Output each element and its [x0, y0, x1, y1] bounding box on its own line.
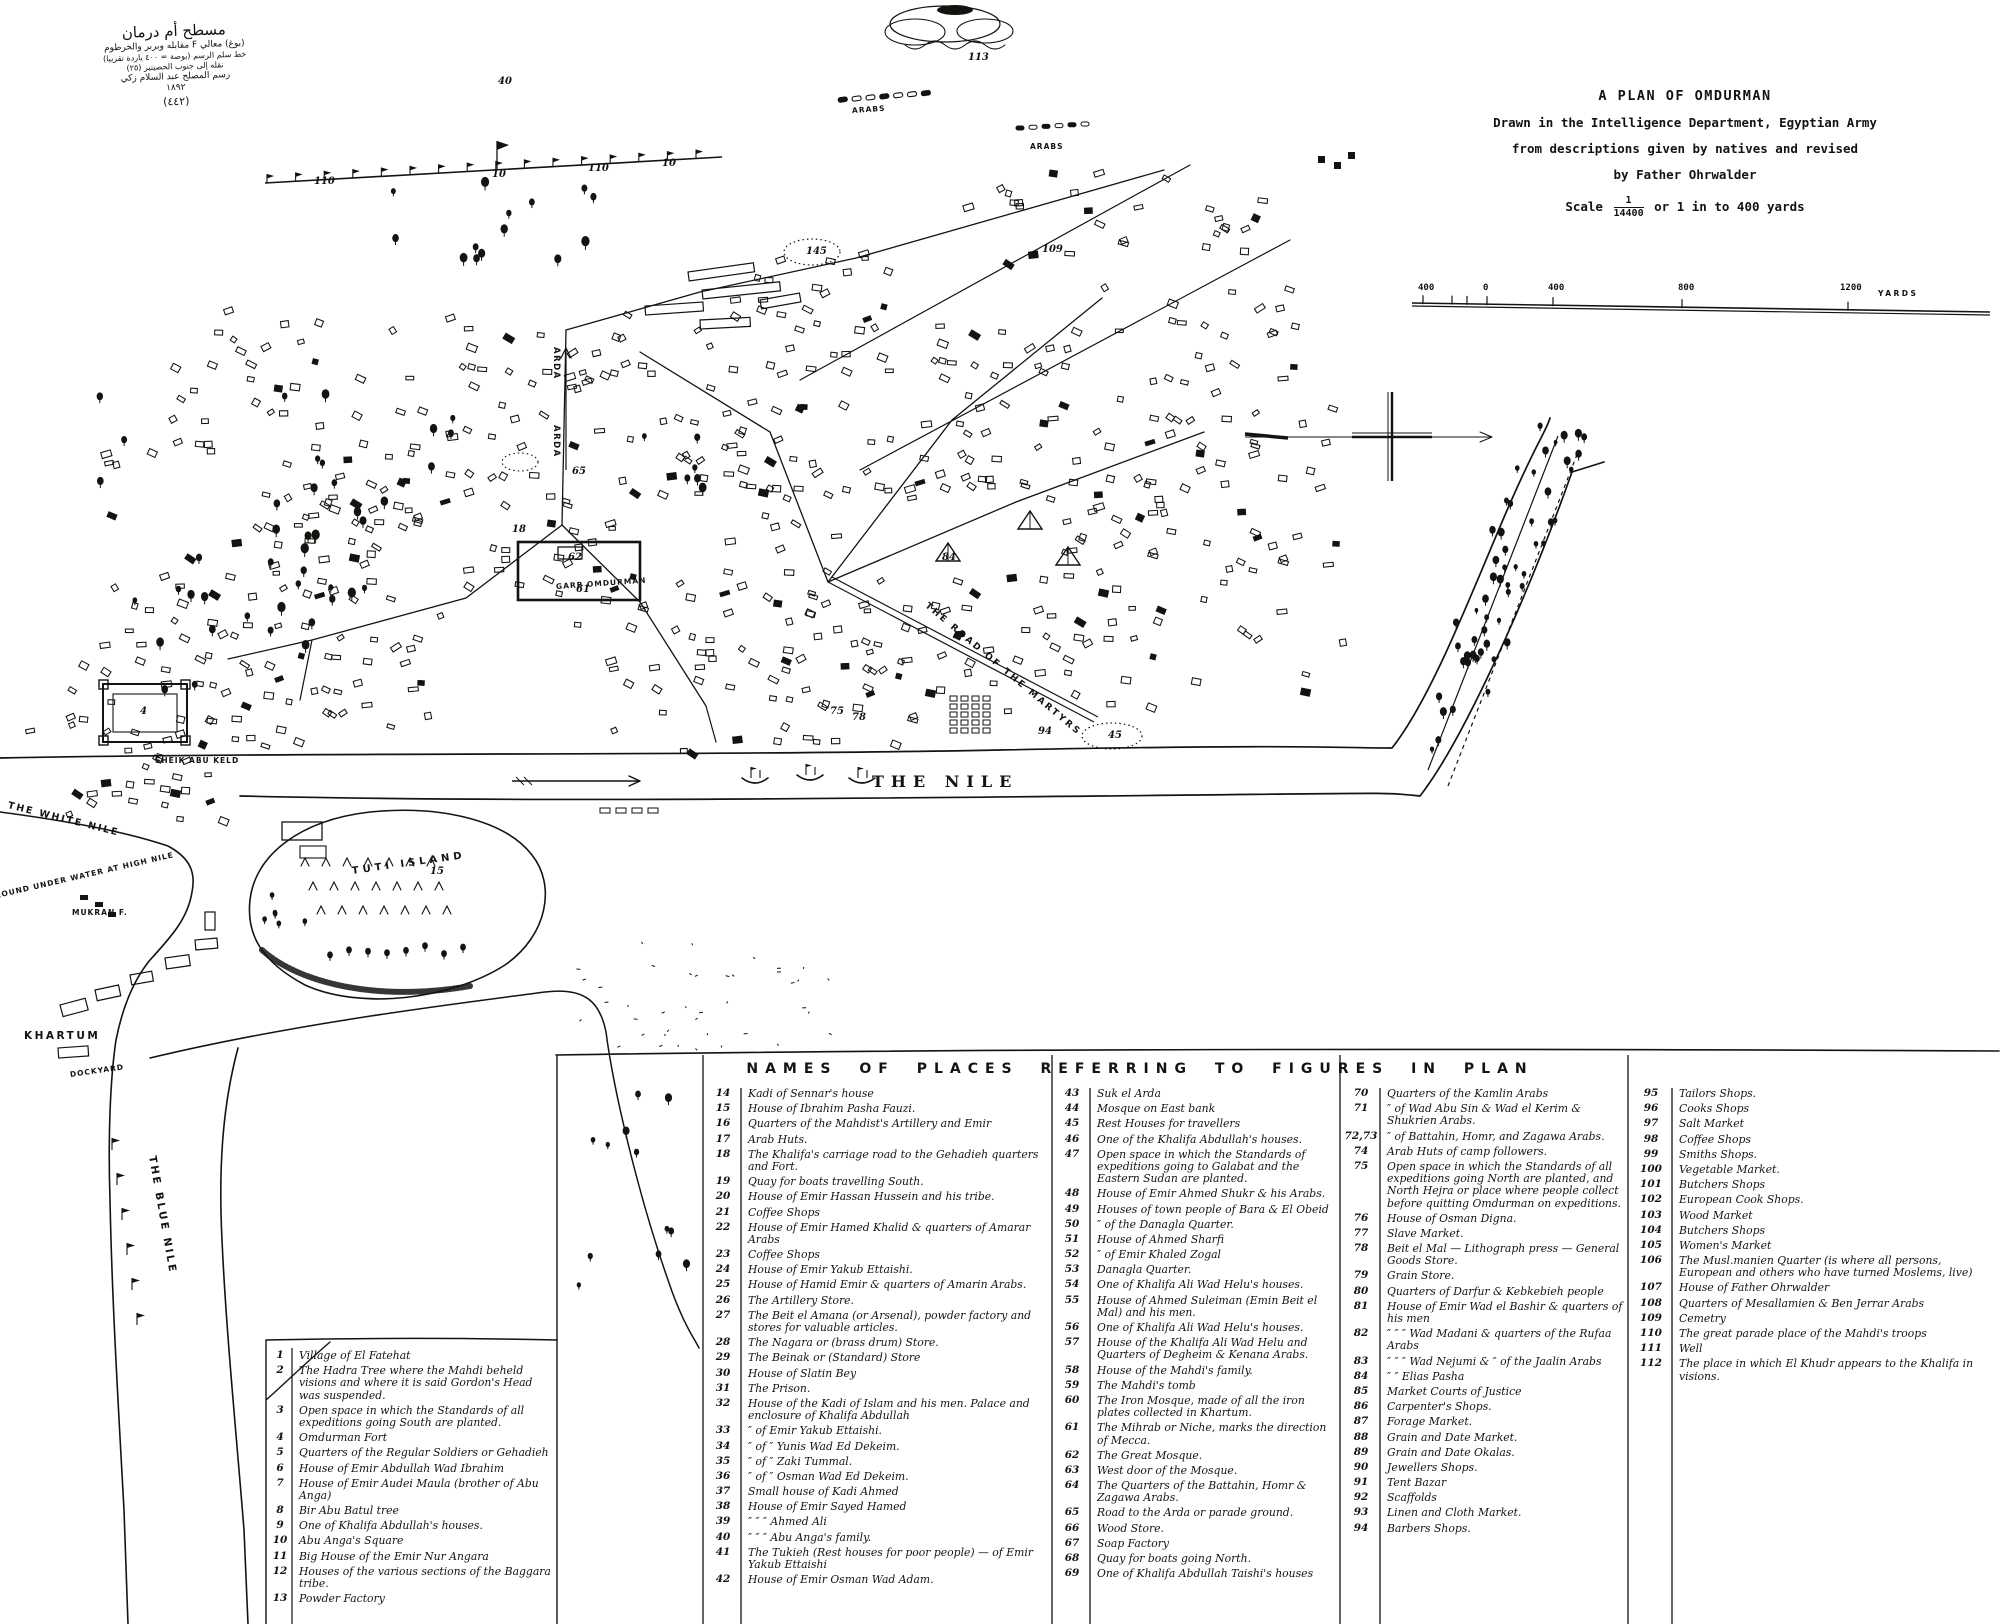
legend-entry-number: 7 — [267, 1478, 293, 1502]
scale-word: Scale — [1565, 199, 1603, 214]
legend-entry: 97Salt Market — [1629, 1118, 1995, 1130]
figure-marker: 145 — [806, 246, 827, 257]
legend-entry-number: 44 — [1053, 1103, 1091, 1115]
legend-entry-text: The Mahdi's tomb — [1091, 1380, 1338, 1392]
legend-entry-text: The Tukieh (Rest houses for poor people)… — [742, 1547, 1050, 1571]
legend-entry: 92Scaffolds — [1341, 1492, 1628, 1504]
legend-entry: 4Omdurman Fort — [267, 1432, 556, 1444]
legend-entry-text: ″ ″ Elias Pasha — [1381, 1371, 1628, 1383]
legend-entry: 26The Artillery Store. — [704, 1295, 1050, 1307]
legend-entry: 46One of the Khalifa Abdullah's houses. — [1053, 1134, 1338, 1146]
legend-entry-text: House of Hamid Emir & quarters of Amarin… — [742, 1279, 1050, 1291]
legend-entry: 41The Tukieh (Rest houses for poor peopl… — [704, 1547, 1050, 1571]
legend-entry-number: 47 — [1053, 1149, 1091, 1186]
legend-entry-text: Butchers Shops — [1673, 1179, 1995, 1191]
legend-entry-text: The Khalifa's carriage road to the Gehad… — [742, 1149, 1050, 1173]
legend-entry-text: Mosque on East bank — [1091, 1103, 1338, 1115]
legend-entry: 50″ of the Danagla Quarter. — [1053, 1219, 1338, 1231]
legend-entry-number: 34 — [704, 1441, 742, 1453]
legend-entry-text: The Prison. — [742, 1383, 1050, 1395]
figure-marker: 78 — [852, 712, 866, 723]
legend-entry-number: 16 — [704, 1118, 742, 1130]
legend-entry-text: The Mihrab or Niche, marks the direction… — [1091, 1422, 1338, 1446]
legend-entry: 13Powder Factory — [267, 1593, 556, 1605]
figure-marker: 61 — [576, 584, 590, 595]
legend-entry-text: Quarters of Darfur & Kebkebieh people — [1381, 1286, 1628, 1298]
legend-entry: 104Butchers Shops — [1629, 1225, 1995, 1237]
legend-entry-number: 97 — [1629, 1118, 1673, 1130]
legend-entry-number: 65 — [1053, 1507, 1091, 1519]
legend-entry-text: Cemetry — [1673, 1313, 1995, 1325]
legend-entry-number: 14 — [704, 1088, 742, 1100]
legend-entry-number: 63 — [1053, 1465, 1091, 1477]
title-line-1: Drawn in the Intelligence Department, Eg… — [1400, 115, 1970, 130]
legend-entry: 112The place in which El Khudr appears t… — [1629, 1358, 1995, 1382]
legend-entry-number: 112 — [1629, 1358, 1673, 1382]
legend-entry-text: European Cook Shops. — [1673, 1194, 1995, 1206]
legend-entry: 83″ ″ ″ Wad Nejumi & ″ of the Jaalin Ara… — [1341, 1356, 1628, 1368]
scale-denominator: 14400 — [1614, 208, 1644, 219]
scale-bar-unit: YARDS — [1878, 289, 1918, 298]
legend-entry-number: 40 — [704, 1532, 742, 1544]
legend-entry-number: 66 — [1053, 1523, 1091, 1535]
legend-entry-number: 55 — [1053, 1295, 1091, 1319]
legend-entry-text: Bir Abu Batul tree — [293, 1505, 556, 1517]
legend-entry-text: Kadi of Sennar's house — [742, 1088, 1050, 1100]
legend-entry: 19Quay for boats travelling South. — [704, 1176, 1050, 1188]
legend-entry-text: Open space in which the Standards of all… — [293, 1405, 556, 1429]
legend-entry: 77Slave Market. — [1341, 1228, 1628, 1240]
legend-entry: 29The Beinak or (Standard) Store — [704, 1352, 1050, 1364]
legend-entry-text: Soap Factory — [1091, 1538, 1338, 1550]
legend-entry-text: House of Emir Audei Maula (brother of Ab… — [293, 1478, 556, 1502]
legend-entry-number: 85 — [1341, 1386, 1381, 1398]
legend-entry-text: House of Osman Digna. — [1381, 1213, 1628, 1225]
legend-entry-number: 79 — [1341, 1270, 1381, 1282]
legend-entry: 64The Quarters of the Battahin, Homr & Z… — [1053, 1480, 1338, 1504]
legend-entry-number: 49 — [1053, 1204, 1091, 1216]
legend-entry-number: 69 — [1053, 1568, 1091, 1580]
legend-entry-number: 89 — [1341, 1447, 1381, 1459]
legend-entry-number: 78 — [1341, 1243, 1381, 1267]
legend-entry: 61The Mihrab or Niche, marks the directi… — [1053, 1422, 1338, 1446]
legend-entry-text: House of Father Ohrwalder — [1673, 1282, 1995, 1294]
legend-entry-number: 5 — [267, 1447, 293, 1459]
legend-entry-number: 60 — [1053, 1395, 1091, 1419]
legend-entry: 6House of Emir Abdullah Wad Ibrahim — [267, 1463, 556, 1475]
legend-column-3: 43Suk el Arda44Mosque on East bank45Rest… — [1053, 1088, 1338, 1583]
legend-entry-number: 88 — [1341, 1432, 1381, 1444]
legend-entry: 36″ of ″ Osman Wad Ed Dekeim. — [704, 1471, 1050, 1483]
legend-entry-text: Wood Market — [1673, 1210, 1995, 1222]
legend-entry-text: The Beinak or (Standard) Store — [742, 1352, 1050, 1364]
legend-entry-text: One of Khalifa Ali Wad Helu's houses. — [1091, 1279, 1338, 1291]
legend-entry-number: 3 — [267, 1405, 293, 1429]
legend-entry-text: Coffee Shops — [742, 1207, 1050, 1219]
legend-entry-text: The great parade place of the Mahdi's tr… — [1673, 1328, 1995, 1340]
legend-entry: 86Carpenter's Shops. — [1341, 1401, 1628, 1413]
legend-entry-number: 81 — [1341, 1301, 1381, 1325]
legend-entry-text: Big House of the Emir Nur Angara — [293, 1551, 556, 1563]
legend-entry: 21Coffee Shops — [704, 1207, 1050, 1219]
legend-entry-number: 56 — [1053, 1322, 1091, 1334]
legend-entry-number: 64 — [1053, 1480, 1091, 1504]
legend-entry: 94Barbers Shops. — [1341, 1523, 1628, 1535]
legend-entry-number: 17 — [704, 1134, 742, 1146]
map-label-arabs-2: ARABS — [1030, 142, 1064, 151]
legend-entry-text: Butchers Shops — [1673, 1225, 1995, 1237]
legend-entry-number: 51 — [1053, 1234, 1091, 1246]
legend-entry-number: 104 — [1629, 1225, 1673, 1237]
legend-entry: 111Well — [1629, 1343, 1995, 1355]
figure-marker: 10 — [492, 169, 506, 180]
legend-entry-number: 29 — [704, 1352, 742, 1364]
legend-entry: 37Small house of Kadi Ahmed — [704, 1486, 1050, 1498]
legend-entry-number: 62 — [1053, 1450, 1091, 1462]
legend-entry-number: 107 — [1629, 1282, 1673, 1294]
legend-entry-number: 100 — [1629, 1164, 1673, 1176]
legend-entry: 25House of Hamid Emir & quarters of Amar… — [704, 1279, 1050, 1291]
legend-entry-text: Quarters of the Mahdist's Artillery and … — [742, 1118, 1050, 1130]
legend-entry: 81House of Emir Wad el Bashir & quarters… — [1341, 1301, 1628, 1325]
legend-entry: 99Smiths Shops. — [1629, 1149, 1995, 1161]
legend-entry-number: 37 — [704, 1486, 742, 1498]
legend-entry-number: 103 — [1629, 1210, 1673, 1222]
legend-entry-number: 11 — [267, 1551, 293, 1563]
legend-entry: 59The Mahdi's tomb — [1053, 1380, 1338, 1392]
legend-entry-text: The place in which El Khudr appears to t… — [1673, 1358, 1995, 1382]
legend-entry: 9One of Khalifa Abdullah's houses. — [267, 1520, 556, 1532]
scale-bar-tick-label: 1200 — [1840, 283, 1862, 293]
legend-entry: 8Bir Abu Batul tree — [267, 1505, 556, 1517]
legend-entry-text: Salt Market — [1673, 1118, 1995, 1130]
legend-entry-number: 80 — [1341, 1286, 1381, 1298]
legend-entry: 106The Musl.manien Quarter (is where all… — [1629, 1255, 1995, 1279]
map-label-the-nile: THE NILE — [872, 772, 1018, 791]
legend-entry: 52″ of Emir Khaled Zogal — [1053, 1249, 1338, 1261]
figure-marker: 45 — [1108, 730, 1122, 741]
legend-entry-number: 25 — [704, 1279, 742, 1291]
legend-entry-number: 23 — [704, 1249, 742, 1261]
title-block: A PLAN OF OMDURMAN Drawn in the Intellig… — [1400, 88, 1970, 219]
legend-entry-text: House of Emir Wad el Bashir & quarters o… — [1381, 1301, 1628, 1325]
legend-entry: 16Quarters of the Mahdist's Artillery an… — [704, 1118, 1050, 1130]
legend-entry-text: Village of El Fatehat — [293, 1350, 556, 1362]
map-label-khartum: KHARTUM — [24, 1030, 100, 1042]
legend-entry-text: Tailors Shops. — [1673, 1088, 1995, 1100]
legend-entry-text: Market Courts of Justice — [1381, 1386, 1628, 1398]
legend-entry-text: The Nagara or (brass drum) Store. — [742, 1337, 1050, 1349]
legend-entry-text: Quay for boats travelling South. — [742, 1176, 1050, 1188]
legend-entry-text: Linen and Cloth Market. — [1381, 1507, 1628, 1519]
legend-entry-number: 4 — [267, 1432, 293, 1444]
legend-entry: 69One of Khalifa Abdullah Taishi's house… — [1053, 1568, 1338, 1580]
legend-entry: 30House of Slatin Bey — [704, 1368, 1050, 1380]
legend-entry-text: The Artillery Store. — [742, 1295, 1050, 1307]
scale-numerator: 1 — [1614, 196, 1644, 208]
map-label-sheik-abu-keld: SHEIK ABU KELD — [155, 756, 239, 765]
scale-fraction: 114400 — [1614, 196, 1644, 219]
figure-marker: 75 — [830, 706, 844, 717]
legend-entry-text: One of the Khalifa Abdullah's houses. — [1091, 1134, 1338, 1146]
legend-entry-number: 52 — [1053, 1249, 1091, 1261]
legend-entry-number: 101 — [1629, 1179, 1673, 1191]
legend-entry-text: Houses of town people of Bara & El Obeid — [1091, 1204, 1338, 1216]
legend-entry-text: Quarters of the Regular Soldiers or Geha… — [293, 1447, 556, 1459]
legend-entry-number: 22 — [704, 1222, 742, 1246]
legend-entry-text: Quay for boats going North. — [1091, 1553, 1338, 1565]
legend-entry-text: The Quarters of the Battahin, Homr & Zag… — [1091, 1480, 1338, 1504]
legend-entry-number: 48 — [1053, 1188, 1091, 1200]
figure-marker: 110 — [588, 163, 609, 174]
legend-entry-number: 95 — [1629, 1088, 1673, 1100]
legend-entry-text: Small house of Kadi Ahmed — [742, 1486, 1050, 1498]
map-title: A PLAN OF OMDURMAN — [1400, 88, 1970, 104]
legend-entry-text: Beit el Mal — Lithograph press — General… — [1381, 1243, 1628, 1267]
legend-entry-number: 43 — [1053, 1088, 1091, 1100]
legend-entry: 90Jewellers Shops. — [1341, 1462, 1628, 1474]
legend-entry-text: Vegetable Market. — [1673, 1164, 1995, 1176]
figure-marker: 113 — [968, 52, 989, 63]
legend-entry-number: 28 — [704, 1337, 742, 1349]
figure-marker: 10 — [662, 158, 676, 169]
legend-entry-text: House of the Mahdi's family. — [1091, 1365, 1338, 1377]
legend-header: NAMES OF PLACES REFERRING TO FIGURES IN … — [700, 1061, 1580, 1077]
legend-entry-text: ″ ″ ″ Ahmed Ali — [742, 1516, 1050, 1528]
legend-entry-number: 15 — [704, 1103, 742, 1115]
legend-entry-number: 72,73 — [1341, 1131, 1381, 1143]
legend-entry: 57House of the Khalifa Ali Wad Helu and … — [1053, 1337, 1338, 1361]
legend-entry-text: One of Khalifa Ali Wad Helu's houses. — [1091, 1322, 1338, 1334]
legend-entry-number: 94 — [1341, 1523, 1381, 1535]
legend-entry-text: Scaffolds — [1381, 1492, 1628, 1504]
legend-entry-text: House of Emir Sayed Hamed — [742, 1501, 1050, 1513]
legend-entry: 72,73″ of Battahin, Homr, and Zagawa Ara… — [1341, 1131, 1628, 1143]
legend-entry: 39″ ″ ″ Ahmed Ali — [704, 1516, 1050, 1528]
legend-entry-text: The Hadra Tree where the Mahdi beheld vi… — [293, 1365, 556, 1402]
legend-entry: 28The Nagara or (brass drum) Store. — [704, 1337, 1050, 1349]
arabic-annotation: مسطح أم درمان(بوغ) معالي F مقابله وبربر … — [39, 17, 312, 113]
legend-entry: 56One of Khalifa Ali Wad Helu's houses. — [1053, 1322, 1338, 1334]
legend-entry-number: 31 — [704, 1383, 742, 1395]
legend-entry-text: House of the Khalifa Ali Wad Helu and Qu… — [1091, 1337, 1338, 1361]
legend-entry-number: 46 — [1053, 1134, 1091, 1146]
legend-entry-number: 96 — [1629, 1103, 1673, 1115]
legend-entry-text: Grain and Date Okalas. — [1381, 1447, 1628, 1459]
legend-entry-number: 102 — [1629, 1194, 1673, 1206]
legend-entry: 53Danagla Quarter. — [1053, 1264, 1338, 1276]
scale-bar-tick-label: 0 — [1483, 283, 1488, 293]
legend-entry-number: 57 — [1053, 1337, 1091, 1361]
legend-entry-number: 8 — [267, 1505, 293, 1517]
legend-entry-text: One of Khalifa Abdullah Taishi's houses — [1091, 1568, 1338, 1580]
legend-entry-number: 105 — [1629, 1240, 1673, 1252]
legend-entry-text: Open space in which the Standards of all… — [1381, 1161, 1628, 1210]
legend-entry-text: Jewellers Shops. — [1381, 1462, 1628, 1474]
scale-bar-tick-label: 800 — [1678, 283, 1694, 293]
legend-entry-text: House of Emir Hamed Khalid & quarters of… — [742, 1222, 1050, 1246]
map-label-arda-lower: ARDA — [551, 425, 561, 458]
legend-entry-text: ″ of Emir Khaled Zogal — [1091, 1249, 1338, 1261]
legend-entry-text: ″ ″ ″ Abu Anga's family. — [742, 1532, 1050, 1544]
legend-entry-text: ″ of ″ Zaki Tummal. — [742, 1456, 1050, 1468]
legend-entry-number: 32 — [704, 1398, 742, 1422]
legend-entry-number: 98 — [1629, 1134, 1673, 1146]
legend-entry-number: 1 — [267, 1350, 293, 1362]
legend-entry: 3Open space in which the Standards of al… — [267, 1405, 556, 1429]
legend-entry-text: ″ of Battahin, Homr, and Zagawa Arabs. — [1381, 1131, 1628, 1143]
legend-entry-text: House of Slatin Bey — [742, 1368, 1050, 1380]
legend-entry-text: Rest Houses for travellers — [1091, 1118, 1338, 1130]
legend-entry-text: Well — [1673, 1343, 1995, 1355]
legend-entry-number: 106 — [1629, 1255, 1673, 1279]
legend-entry-number: 12 — [267, 1566, 293, 1590]
legend-entry: 20House of Emir Hassan Hussein and his t… — [704, 1191, 1050, 1203]
legend-entry: 58House of the Mahdi's family. — [1053, 1365, 1338, 1377]
figure-marker: 109 — [1042, 244, 1063, 255]
legend-entry-text: Arab Huts. — [742, 1134, 1050, 1146]
legend-column-4: 70Quarters of the Kamlin Arabs71″ of Wad… — [1341, 1088, 1628, 1538]
legend-entry-number: 68 — [1053, 1553, 1091, 1565]
legend-entry-number: 45 — [1053, 1118, 1091, 1130]
legend-entry-number: 27 — [704, 1310, 742, 1334]
legend-entry-number: 2 — [267, 1365, 293, 1402]
legend-entry-number: 91 — [1341, 1477, 1381, 1489]
legend-entry-text: Quarters of Mesallamien & Ben Jerrar Ara… — [1673, 1298, 1995, 1310]
legend-entry-number: 84 — [1341, 1371, 1381, 1383]
legend-entry-text: House of Emir Hassan Hussein and his tri… — [742, 1191, 1050, 1203]
figure-marker: 18 — [512, 524, 526, 535]
legend-entry-number: 13 — [267, 1593, 293, 1605]
legend-entry: 35″ of ″ Zaki Tummal. — [704, 1456, 1050, 1468]
scale-bar-tick-label: 400 — [1418, 283, 1434, 293]
legend-entry-text: Wood Store. — [1091, 1523, 1338, 1535]
legend-entry: 10Abu Anga's Square — [267, 1535, 556, 1547]
legend-entry-number: 36 — [704, 1471, 742, 1483]
legend-entry: 38House of Emir Sayed Hamed — [704, 1501, 1050, 1513]
legend-entry-text: ″ of ″ Yunis Wad Ed Dekeim. — [742, 1441, 1050, 1453]
legend-entry: 102European Cook Shops. — [1629, 1194, 1995, 1206]
legend-entry-text: House of Ahmed Suleiman (Emin Beit el Ma… — [1091, 1295, 1338, 1319]
legend-entry: 42House of Emir Osman Wad Adam. — [704, 1574, 1050, 1586]
legend-entry-number: 74 — [1341, 1146, 1381, 1158]
legend-entry-text: One of Khalifa Abdullah's houses. — [293, 1520, 556, 1532]
figure-marker: 40 — [498, 76, 512, 87]
legend-entry-number: 42 — [704, 1574, 742, 1586]
legend-entry-text: The Iron Mosque, made of all the iron pl… — [1091, 1395, 1338, 1419]
legend-entry: 14Kadi of Sennar's house — [704, 1088, 1050, 1100]
legend-entry: 17Arab Huts. — [704, 1134, 1050, 1146]
legend-entry-number: 38 — [704, 1501, 742, 1513]
map-label-mukran-f: MUKRAN F. — [72, 908, 128, 917]
scale-suffix: or 1 in to 400 yards — [1654, 199, 1805, 214]
legend-entry: 88Grain and Date Market. — [1341, 1432, 1628, 1444]
legend-entry: 107House of Father Ohrwalder — [1629, 1282, 1995, 1294]
legend-entry-text: House of the Kadi of Islam and his men. … — [742, 1398, 1050, 1422]
legend-entry: 62The Great Mosque. — [1053, 1450, 1338, 1462]
legend-entry-text: Grain Store. — [1381, 1270, 1628, 1282]
legend-entry-number: 70 — [1341, 1088, 1381, 1100]
legend-entry: 43Suk el Arda — [1053, 1088, 1338, 1100]
legend-entry: 71″ of Wad Abu Sin & Wad el Kerim & Shuk… — [1341, 1103, 1628, 1127]
legend-entry-text: Cooks Shops — [1673, 1103, 1995, 1115]
legend-entry: 27The Beit el Amana (or Arsenal), powder… — [704, 1310, 1050, 1334]
legend-entry: 84″ ″ Elias Pasha — [1341, 1371, 1628, 1383]
legend-entry-number: 111 — [1629, 1343, 1673, 1355]
legend-entry-number: 109 — [1629, 1313, 1673, 1325]
legend-entry: 108Quarters of Mesallamien & Ben Jerrar … — [1629, 1298, 1995, 1310]
legend-entry-number: 90 — [1341, 1462, 1381, 1474]
legend-entry: 5Quarters of the Regular Soldiers or Geh… — [267, 1447, 556, 1459]
legend-entry-text: House of Ahmed Sharfi — [1091, 1234, 1338, 1246]
legend-entry: 47Open space in which the Standards of e… — [1053, 1149, 1338, 1186]
legend-entry: 82″ ″ ″ Wad Madani & quarters of the Ruf… — [1341, 1328, 1628, 1352]
legend-entry: 68Quay for boats going North. — [1053, 1553, 1338, 1565]
legend-entry: 87Forage Market. — [1341, 1416, 1628, 1428]
scale-bar-tick-label: 400 — [1548, 283, 1564, 293]
legend-entry: 93Linen and Cloth Market. — [1341, 1507, 1628, 1519]
legend-entry-number: 82 — [1341, 1328, 1381, 1352]
legend-entry-text: Coffee Shops — [742, 1249, 1050, 1261]
figure-marker: 94 — [1038, 726, 1052, 737]
legend-entry: 22House of Emir Hamed Khalid & quarters … — [704, 1222, 1050, 1246]
legend-entry-text: Suk el Arda — [1091, 1088, 1338, 1100]
legend-entry-text: ″ ″ ″ Wad Madani & quarters of the Rufaa… — [1381, 1328, 1628, 1352]
figure-marker: 110 — [314, 176, 335, 187]
legend-entry: 96Cooks Shops — [1629, 1103, 1995, 1115]
legend-entry-text: Arab Huts of camp followers. — [1381, 1146, 1628, 1158]
legend-entry: 63West door of the Mosque. — [1053, 1465, 1338, 1477]
legend-entry-number: 21 — [704, 1207, 742, 1219]
legend-column-5: 95Tailors Shops.96Cooks Shops97Salt Mark… — [1629, 1088, 1995, 1386]
legend-entry: 12Houses of the various sections of the … — [267, 1566, 556, 1590]
legend-entry-number: 6 — [267, 1463, 293, 1475]
legend-entry-number: 9 — [267, 1520, 293, 1532]
legend-entry: 55House of Ahmed Suleiman (Emin Beit el … — [1053, 1295, 1338, 1319]
legend-entry-text: Grain and Date Market. — [1381, 1432, 1628, 1444]
legend-entry-text: ″ of ″ Osman Wad Ed Dekeim. — [742, 1471, 1050, 1483]
legend-entry-text: Danagla Quarter. — [1091, 1264, 1338, 1276]
legend-entry-number: 71 — [1341, 1103, 1381, 1127]
legend-entry: 32House of the Kadi of Islam and his men… — [704, 1398, 1050, 1422]
legend-entry: 33″ of Emir Yakub Ettaishi. — [704, 1425, 1050, 1437]
legend-entry: 105Women's Market — [1629, 1240, 1995, 1252]
legend-entry-number: 67 — [1053, 1538, 1091, 1550]
legend-entry-number: 75 — [1341, 1161, 1381, 1210]
legend-entry-text: Quarters of the Kamlin Arabs — [1381, 1088, 1628, 1100]
map-label-arda-upper: ARDA — [551, 347, 561, 380]
legend-entry-text: House of Emir Yakub Ettaishi. — [742, 1264, 1050, 1276]
legend-entry-text: Houses of the various sections of the Ba… — [293, 1566, 556, 1590]
plan-of-omdurman-map: مسطح أم درمان(بوغ) معالي F مقابله وبربر … — [0, 0, 2000, 1624]
legend-entry-number: 33 — [704, 1425, 742, 1437]
legend-entry-number: 87 — [1341, 1416, 1381, 1428]
legend-entry-number: 30 — [704, 1368, 742, 1380]
legend-entry-number: 83 — [1341, 1356, 1381, 1368]
figure-marker: 15 — [430, 866, 444, 877]
legend-entry: 75Open space in which the Standards of a… — [1341, 1161, 1628, 1210]
legend-entry-number: 35 — [704, 1456, 742, 1468]
legend-entry-text: Open space in which the Standards of exp… — [1091, 1149, 1338, 1186]
legend-entry-number: 53 — [1053, 1264, 1091, 1276]
title-line-2: from descriptions given by natives and r… — [1400, 141, 1970, 156]
legend-entry-text: House of Emir Osman Wad Adam. — [742, 1574, 1050, 1586]
legend-entry-number: 58 — [1053, 1365, 1091, 1377]
legend-entry-text: Slave Market. — [1381, 1228, 1628, 1240]
legend-entry-text: The Great Mosque. — [1091, 1450, 1338, 1462]
legend-entry-number: 61 — [1053, 1422, 1091, 1446]
legend-entry: 85Market Courts of Justice — [1341, 1386, 1628, 1398]
